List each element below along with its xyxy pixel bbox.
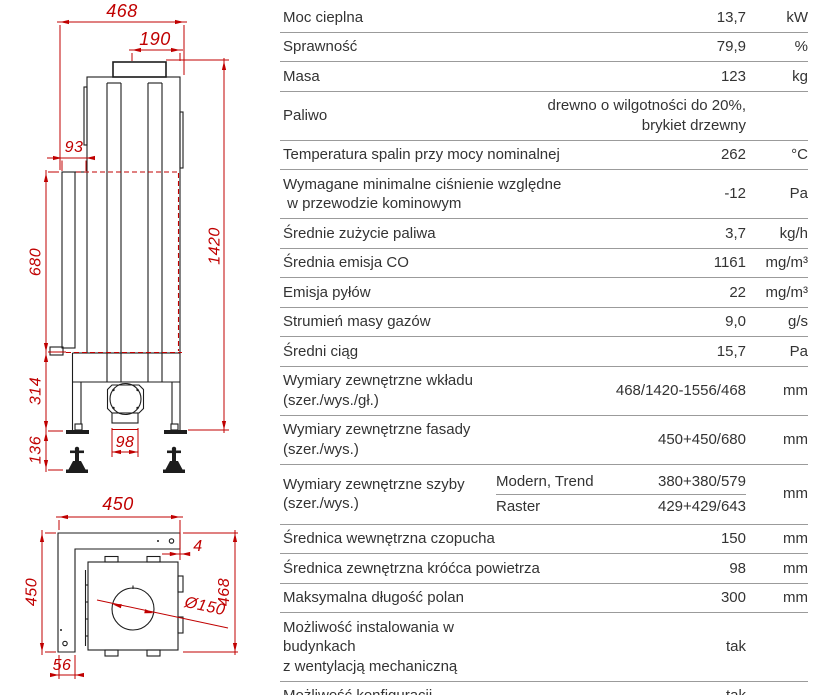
table-row: Średnie zużycie paliwa3,7kg/h [280, 219, 808, 249]
spec-value: 79,9 [596, 37, 746, 57]
dim-facade-width: 450 [102, 494, 134, 514]
dim-feet-height: 136 [28, 436, 45, 464]
spec-label: Emisja pyłów [283, 283, 596, 303]
spec-label: Średnica wewnętrzna czopucha [283, 529, 596, 549]
spec-unit: °C [746, 145, 808, 165]
dim-left-offset: 56 [53, 657, 72, 674]
spec-unit: mm [746, 381, 808, 401]
dim-flue-offset: 190 [139, 29, 171, 49]
spec-unit: kg [746, 67, 808, 87]
table-row: Sprawność79,9% [280, 33, 808, 63]
spec-label: Paliwo [283, 106, 534, 126]
variant-name: Raster [496, 497, 628, 517]
dim-facade-height: 680 [28, 248, 45, 276]
spec-value: tak [534, 686, 746, 695]
air-inlet-circle [110, 384, 141, 415]
flue-stub [113, 62, 166, 77]
spec-value: drewno o wilgotności do 20%,brykiet drze… [534, 96, 746, 135]
spec-label: Możliwość konfiguracji [283, 686, 534, 695]
spec-unit: mm [746, 559, 808, 579]
table-row: Możliwość konfiguracjitak [280, 682, 808, 695]
spec-label: Wymiary zewnętrzne fasady(szer./wys.) [283, 420, 596, 459]
table-row: Wymagane minimalne ciśnienie względne w … [280, 170, 808, 219]
spec-label: Sprawność [283, 37, 596, 57]
table-row: Moc cieplna13,7kW [280, 3, 808, 33]
spec-value: 13,7 [596, 8, 746, 28]
spec-label: Wymiary zewnętrzne szyby(szer./wys.) [283, 475, 496, 514]
table-row: Możliwość instalowania w budynkachz went… [280, 613, 808, 682]
technical-drawing: 468 190 93 1420 680 314 136 98 [0, 0, 270, 695]
facade-plate [58, 533, 180, 652]
spec-label: Średnica zewnętrzna króćca powietrza [283, 559, 596, 579]
spec-label: Masa [283, 67, 596, 87]
spec-table: Moc cieplna13,7kWSprawność79,9%Masa123kg… [280, 3, 808, 695]
spec-value: 450+450/680 [596, 430, 746, 450]
table-row: Średni ciąg15,7Pa [280, 337, 808, 367]
spec-value: 468/1420-1556/468 [596, 381, 746, 401]
dim-inlet-width: 98 [116, 434, 135, 451]
dim-left-inset: 93 [65, 139, 84, 156]
spec-value: 1161 [596, 253, 746, 273]
spec-label: Średnia emisja CO [283, 253, 596, 273]
table-row: Wymiary zewnętrzne wkładu(szer./wys./gł.… [280, 367, 808, 416]
variant-name: Modern, Trend [496, 472, 628, 492]
variant-row: Raster429+429/643 [496, 495, 746, 520]
spec-value: 15,7 [596, 342, 746, 362]
spec-label: Maksymalna długość polan [283, 588, 596, 608]
spec-unit: mm [746, 484, 808, 504]
spec-unit: kg/h [746, 224, 808, 244]
dim-total-width: 468 [106, 1, 138, 21]
spec-unit: kW [746, 8, 808, 28]
spec-value: tak [534, 637, 746, 657]
spec-value: -12 [596, 184, 746, 204]
spec-value: 150 [596, 529, 746, 549]
insert-body [87, 77, 180, 353]
spec-value: 262 [596, 145, 746, 165]
spec-unit: g/s [746, 312, 808, 332]
spec-label: Średnie zużycie paliwa [283, 224, 596, 244]
spec-unit: mg/m³ [746, 283, 808, 303]
top-view-drawing: 450 450 468 56 4 Ø150 [24, 494, 239, 679]
spec-value: 3,7 [596, 224, 746, 244]
spec-value: 22 [596, 283, 746, 303]
table-row: Wymiary zewnętrzne szyby(szer./wys.)Mode… [280, 465, 808, 525]
variant-value: 429+429/643 [628, 497, 746, 517]
spec-unit: Pa [746, 184, 808, 204]
spec-label: Średni ciąg [283, 342, 596, 362]
spec-unit: Pa [746, 342, 808, 362]
table-row: Średnia emisja CO1161mg/m³ [280, 249, 808, 279]
variant-sub-table: Modern, Trend380+380/579Raster429+429/64… [496, 469, 746, 519]
dim-facade-depth: 450 [24, 578, 41, 606]
spec-label: Moc cieplna [283, 8, 596, 28]
spec-unit: mg/m³ [746, 253, 808, 273]
spec-label: Temperatura spalin przy mocy nominalnej [283, 145, 596, 165]
spec-label: Możliwość instalowania w budynkachz went… [283, 618, 534, 677]
table-row: Emisja pyłów22mg/m³ [280, 278, 808, 308]
front-view-drawing: 468 190 93 1420 680 314 136 98 [28, 1, 230, 473]
right-foot-pad [164, 430, 187, 434]
body-outline-top [88, 562, 178, 650]
side-glass-wing [62, 172, 75, 348]
spec-label: Wymiary zewnętrzne wkładu(szer./wys./gł.… [283, 371, 596, 410]
spec-value: 9,0 [596, 312, 746, 332]
spec-value: 300 [596, 588, 746, 608]
anchor-bolt [163, 447, 185, 473]
table-row: Strumień masy gazów9,0g/s [280, 308, 808, 338]
spec-value: 123 [596, 67, 746, 87]
spec-unit: mm [746, 430, 808, 450]
spec-label: Strumień masy gazów [283, 312, 596, 332]
left-foot-pad [66, 430, 89, 434]
spec-value: 98 [596, 559, 746, 579]
spec-label: Wymagane minimalne ciśnienie względne w … [283, 175, 596, 214]
variant-value: 380+380/579 [628, 472, 746, 492]
variant-row: Modern, Trend380+380/579 [496, 469, 746, 495]
spec-unit: mm [746, 529, 808, 549]
table-row: Wymiary zewnętrzne fasady(szer./wys.)450… [280, 416, 808, 465]
table-row: Średnica zewnętrzna króćca powietrza98mm [280, 554, 808, 584]
air-inlet-circle-top [112, 588, 154, 630]
datasheet-page: 468 190 93 1420 680 314 136 98 [0, 0, 830, 695]
table-row: Średnica wewnętrzna czopucha150mm [280, 525, 808, 555]
spec-unit: % [746, 37, 808, 57]
dim-panel-gap: 4 [193, 538, 202, 555]
table-row: Paliwodrewno o wilgotności do 20%,brykie… [280, 92, 808, 141]
anchor-bolt [66, 447, 88, 473]
table-row: Masa123kg [280, 62, 808, 92]
spec-unit: mm [746, 588, 808, 608]
dim-total-height: 1420 [207, 227, 224, 265]
table-row: Maksymalna długość polan300mm [280, 584, 808, 614]
table-row: Temperatura spalin przy mocy nominalnej2… [280, 141, 808, 171]
dim-base-height: 314 [28, 377, 45, 405]
